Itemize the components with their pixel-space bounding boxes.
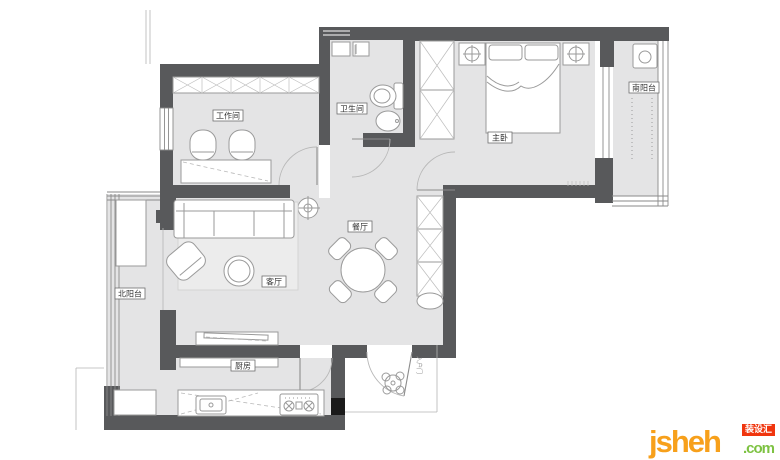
- label-south-balcony: 南阳台: [629, 82, 659, 93]
- bathroom-sink: [376, 111, 400, 131]
- workroom-top-wall: [160, 64, 330, 77]
- tv-cabinet: [196, 332, 278, 345]
- bedroom-bottom-wall: [453, 185, 598, 198]
- washing-machine: [633, 44, 657, 68]
- kitchen-top-wall: [176, 345, 300, 358]
- balcony-column: [156, 210, 163, 223]
- entry-top-wall-left: [332, 345, 367, 358]
- balcony-cabinet-top: [116, 200, 146, 266]
- label-workroom: 工作间: [213, 110, 243, 121]
- toilet: [370, 83, 403, 109]
- workroom-closet: [173, 77, 319, 93]
- bedroom-balcony-wall-top: [600, 41, 614, 67]
- bathroom-bedroom-wall: [403, 27, 415, 147]
- floorplan-drawing: 入户门: [0, 0, 780, 460]
- floorplan-page: 入户门: [0, 0, 780, 460]
- bedroom-wardrobe: [420, 41, 454, 139]
- entry-plant: [382, 372, 404, 394]
- bathroom-cabinet-1: [332, 42, 350, 56]
- nightstand-left: [459, 43, 485, 65]
- workroom-living-divider: [160, 185, 290, 198]
- sofa: [174, 200, 294, 238]
- watermark-logo-text: jsheh: [649, 426, 720, 457]
- svg-text:南阳台: 南阳台: [632, 83, 656, 93]
- watermark-tld: .com: [743, 441, 774, 456]
- dining-right-wall: [443, 185, 456, 345]
- kitchen-stove: [280, 394, 318, 415]
- workroom-chair-2: [229, 130, 255, 160]
- bathroom-left-wall: [319, 27, 330, 145]
- dining-table: [341, 248, 385, 292]
- label-north-balcony: 北阳台: [115, 288, 145, 299]
- bathroom-door-floor: [330, 133, 363, 147]
- kitchen-upper-counter: [180, 358, 278, 367]
- label-living: 客厅: [262, 276, 286, 287]
- svg-text:北阳台: 北阳台: [118, 289, 142, 299]
- svg-text:卫生间: 卫生间: [340, 104, 364, 114]
- label-kitchen: 厨房: [231, 360, 255, 371]
- hall-storage-column: [417, 196, 443, 309]
- bedroom-top-wall: [405, 27, 669, 41]
- living-left-column: [160, 310, 176, 370]
- bottom-wall: [104, 415, 345, 430]
- workroom-door-floor: [290, 185, 319, 198]
- label-bathroom: 卫生间: [337, 103, 367, 114]
- kitchen-left-floor: [160, 370, 176, 415]
- svg-text:工作间: 工作间: [216, 111, 240, 121]
- watermark-badge: 装设汇: [742, 424, 775, 436]
- svg-text:餐厅: 餐厅: [352, 223, 368, 232]
- balcony-cabinet-bottom: [114, 390, 156, 415]
- svg-text:客厅: 客厅: [266, 277, 282, 287]
- workroom-left-wall-upper: [160, 64, 173, 108]
- kitchen-sink: [196, 396, 226, 414]
- label-dining: 餐厅: [348, 221, 372, 232]
- entry-label: 入户门: [415, 356, 423, 374]
- coffee-table: [224, 256, 254, 286]
- bedroom-balcony-slider: [603, 67, 609, 158]
- nightstand-right: [563, 43, 589, 65]
- site-watermark: jsheh 装设汇 .com: [649, 422, 775, 458]
- bed: [486, 43, 560, 133]
- label-master-bedroom: 主卧: [488, 132, 512, 143]
- svg-text:厨房: 厨房: [235, 361, 251, 371]
- svg-text:主卧: 主卧: [492, 133, 508, 143]
- workroom-left-window: [160, 108, 173, 150]
- workroom-chair-1: [190, 130, 216, 160]
- entry-door: [367, 352, 412, 396]
